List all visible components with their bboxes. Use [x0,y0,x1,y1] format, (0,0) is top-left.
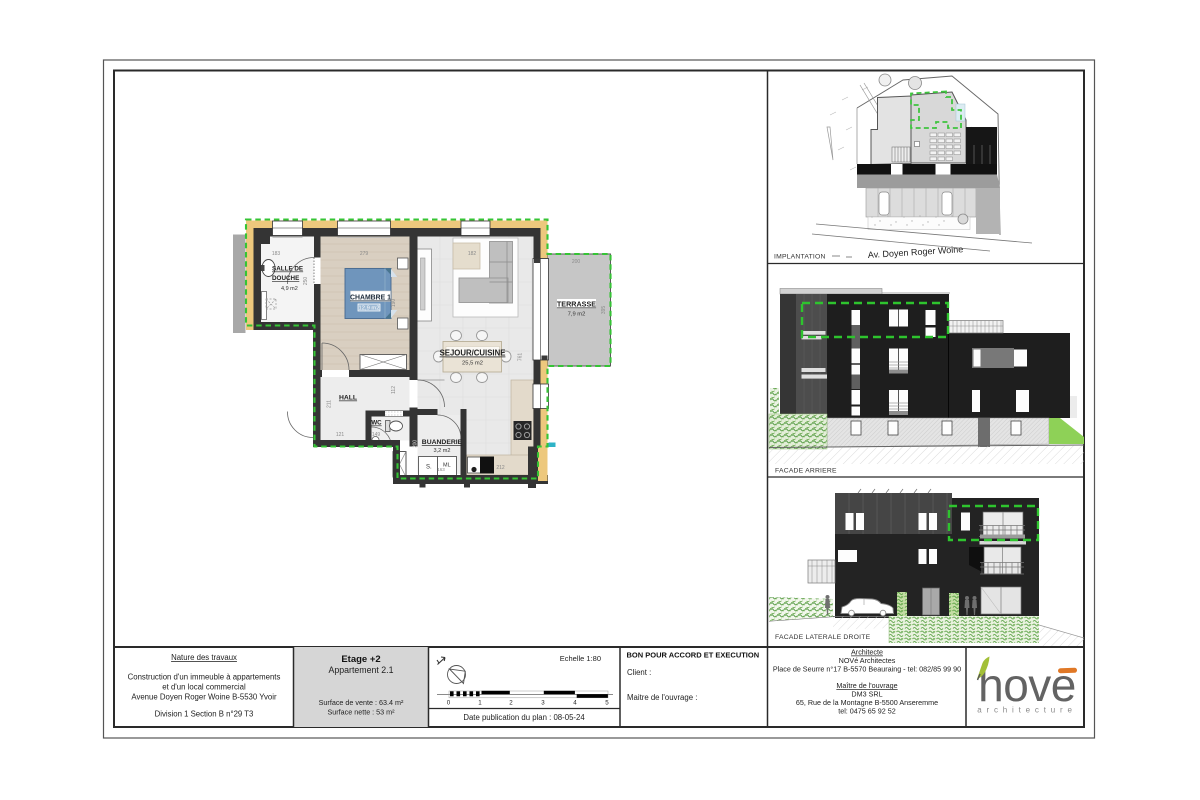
svg-text:FACADE ARRIERE: FACADE ARRIERE [775,468,837,475]
svg-text:S.: S. [426,465,432,471]
svg-text:4: 4 [573,700,577,707]
svg-text:tel: 0475 65 92 52: tel: 0475 65 92 52 [838,707,896,716]
svg-text:7,9 m2: 7,9 m2 [568,312,586,318]
svg-text:FACADE LATERALE DROITE: FACADE LATERALE DROITE [775,634,871,641]
svg-text:25,5 m2: 25,5 m2 [462,361,483,367]
svg-text:190: 190 [391,299,397,308]
svg-text:Echelle 1:80: Echelle 1:80 [560,654,601,663]
svg-text:3: 3 [541,700,545,707]
svg-text:211: 211 [327,400,333,408]
svg-text:3,2 m2: 3,2 m2 [433,448,450,454]
svg-text:112: 112 [391,386,397,394]
svg-text:163: 163 [437,467,445,472]
svg-text:182: 182 [468,251,477,257]
svg-text:TERRASSE: TERRASSE [557,300,596,309]
svg-text:DOUCHE: DOUCHE [272,275,299,282]
svg-text:200: 200 [572,259,581,265]
svg-text:212: 212 [496,465,505,471]
svg-text:Avenue Doyen Roger Woine B-553: Avenue Doyen Roger Woine B-5530 Yvoir [131,693,277,702]
svg-text:WC: WC [371,420,382,427]
svg-text:761: 761 [518,353,524,362]
svg-text:Maitre de l'ouvrage :: Maitre de l'ouvrage : [627,693,697,702]
svg-text:SALLE DE: SALLE DE [272,266,303,273]
svg-text:Client :: Client : [627,668,651,677]
svg-text:architecture: architecture [977,706,1076,715]
svg-text:Division 1 Section B n°29 T3: Division 1 Section B n°29 T3 [155,710,254,719]
svg-text:Construction d'un immeuble à a: Construction d'un immeuble à appartement… [128,673,281,682]
svg-text:149: 149 [372,432,381,438]
svg-text:CHAMBRE 1: CHAMBRE 1 [350,295,391,302]
svg-text:BON POUR ACCORD ET EXECUTION: BON POUR ACCORD ET EXECUTION [627,651,760,660]
svg-text:Surface de vente : 63.4 m²: Surface de vente : 63.4 m² [319,698,404,707]
svg-text:12,9 m2: 12,9 m2 [359,306,380,312]
svg-text:5: 5 [605,700,609,707]
svg-text:0: 0 [447,700,451,707]
svg-text:279: 279 [360,251,369,257]
svg-text:SEJOUR/CUISINE: SEJOUR/CUISINE [440,349,506,358]
svg-text:IMPLANTATION: IMPLANTATION [774,254,826,261]
svg-text:395: 395 [601,306,607,315]
svg-text:200: 200 [413,440,419,449]
svg-text:1: 1 [478,700,482,707]
svg-text:Place de Seurre n°17 B-5570 Be: Place de Seurre n°17 B-5570 Beauraing - … [773,665,961,674]
svg-text:Nature des travaux: Nature des travaux [171,653,237,662]
svg-text:250: 250 [303,277,309,286]
svg-text:4,9 m2: 4,9 m2 [281,286,298,292]
svg-text:Av. Doyen Roger Woine: Av. Doyen Roger Woine [868,244,964,260]
svg-text:Date publication du plan : 08-: Date publication du plan : 08-05-24 [463,713,585,722]
svg-text:Appartement 2.1: Appartement 2.1 [328,665,393,675]
svg-text:183: 183 [272,251,281,257]
svg-text:Surface nette : 53 m²: Surface nette : 53 m² [327,708,395,717]
svg-text:121: 121 [336,432,345,438]
svg-text:BUANDERIE: BUANDERIE [422,439,463,446]
svg-text:2: 2 [509,700,513,707]
svg-text:HALL: HALL [339,395,357,402]
svg-text:Etage +2: Etage +2 [341,654,380,665]
svg-text:hove: hove [978,659,1076,711]
svg-text:et d'un local commercial: et d'un local commercial [162,683,246,692]
